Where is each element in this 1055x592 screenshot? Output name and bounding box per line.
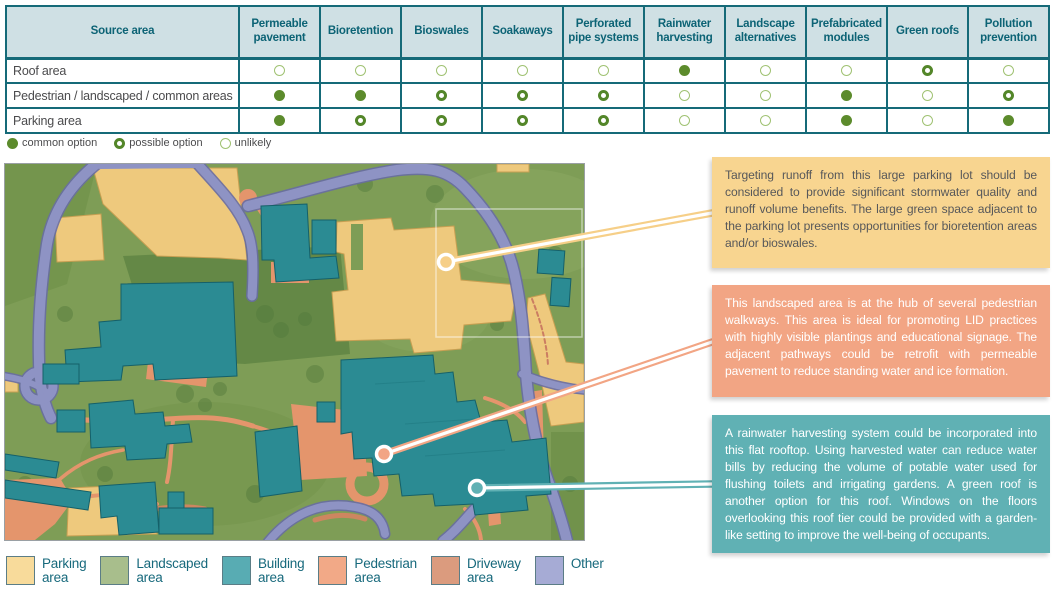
matrix-cell: [887, 108, 968, 133]
column-header-green-roofs: Green roofs: [887, 6, 968, 58]
matrix-cell: [563, 83, 644, 108]
column-header-pollution-prevention: Pollution prevention: [968, 6, 1049, 58]
dot-unlikely-option: [841, 65, 852, 76]
symbol-legend-item: unlikely: [220, 137, 272, 149]
dot-possible-option: [517, 90, 528, 101]
dot-unlikely-option: [220, 138, 231, 149]
callout-landscaped-hub: This landscaped area is at the hub of se…: [712, 285, 1050, 397]
dot-possible-option: [598, 115, 609, 126]
matrix-cell: [401, 58, 482, 83]
legend-item-parking-area: Parkingarea: [6, 556, 86, 585]
dot-common-option: [355, 90, 366, 101]
legend-item-pedestrian-area: Pedestrianarea: [318, 556, 417, 585]
dot-unlikely-option: [922, 115, 933, 126]
matrix-cell: [320, 83, 401, 108]
legend-swatch: [318, 556, 347, 585]
matrix-row: Roof area: [6, 58, 1049, 83]
legend-swatch: [535, 556, 564, 585]
matrix-row: Pedestrian / landscaped / common areas: [6, 83, 1049, 108]
matrix-cell: [806, 83, 887, 108]
legend-item-driveway-area: Drivewayarea: [431, 556, 521, 585]
campus-aerial-map: [4, 163, 585, 541]
dot-unlikely-option: [679, 90, 690, 101]
column-header-prefabricated-modules: Prefabricated modules: [806, 6, 887, 58]
legend-label: Landscapedarea: [136, 556, 208, 585]
legend-swatch: [100, 556, 129, 585]
matrix-cell: [320, 58, 401, 83]
dot-unlikely-option: [760, 65, 771, 76]
matrix-cell: [887, 58, 968, 83]
column-header-perforated-pipe-systems: Perforated pipe systems: [563, 6, 644, 58]
matrix-cell: [401, 83, 482, 108]
dot-unlikely-option: [760, 115, 771, 126]
dot-possible-option: [114, 138, 125, 149]
symbol-legend-item: possible option: [114, 137, 202, 149]
row-label: Roof area: [6, 58, 239, 83]
dot-possible-option: [517, 115, 528, 126]
dot-unlikely-option: [679, 115, 690, 126]
dot-common-option: [841, 115, 852, 126]
column-header-permeable-pavement: Permeable pavement: [239, 6, 320, 58]
legend-item-other: Other: [535, 556, 604, 585]
symbol-legend-label: common option: [22, 137, 97, 149]
matrix-cell: [482, 108, 563, 133]
dot-unlikely-option: [760, 90, 771, 101]
dot-unlikely-option: [598, 65, 609, 76]
matrix-cell: [482, 83, 563, 108]
matrix-cell: [806, 58, 887, 83]
matrix-cell: [320, 108, 401, 133]
column-header-bioswales: Bioswales: [401, 6, 482, 58]
row-label: Parking area: [6, 108, 239, 133]
dot-common-option: [274, 90, 285, 101]
legend-swatch: [6, 556, 35, 585]
symbol-legend: common optionpossible optionunlikely: [7, 137, 271, 149]
dot-possible-option: [355, 115, 366, 126]
dot-unlikely-option: [1003, 65, 1014, 76]
matrix-cell: [887, 83, 968, 108]
dot-possible-option: [598, 90, 609, 101]
matrix-cell: [644, 83, 725, 108]
matrix-header-row: Source areaPermeable pavementBioretentio…: [6, 6, 1049, 58]
source-area-header: Source area: [6, 6, 239, 58]
column-header-rainwater-harvesting: Rainwater harvesting: [644, 6, 725, 58]
column-header-bioretention: Bioretention: [320, 6, 401, 58]
matrix-cell: [482, 58, 563, 83]
matrix-cell: [239, 83, 320, 108]
dot-possible-option: [1003, 90, 1014, 101]
row-label: Pedestrian / landscaped / common areas: [6, 83, 239, 108]
dot-unlikely-option: [274, 65, 285, 76]
matrix-cell: [968, 83, 1049, 108]
matrix-cell: [725, 58, 806, 83]
dot-possible-option: [436, 90, 447, 101]
matrix-cell: [644, 58, 725, 83]
legend-swatch: [431, 556, 460, 585]
dot-unlikely-option: [436, 65, 447, 76]
legend-label: Other: [571, 556, 604, 571]
matrix-cell: [968, 58, 1049, 83]
legend-item-landscaped-area: Landscapedarea: [100, 556, 208, 585]
dot-possible-option: [922, 65, 933, 76]
legend-label: Drivewayarea: [467, 556, 521, 585]
matrix-row: Parking area: [6, 108, 1049, 133]
dot-common-option: [679, 65, 690, 76]
dot-common-option: [1003, 115, 1014, 126]
symbol-legend-label: unlikely: [235, 137, 272, 149]
column-header-landscape-alternatives: Landscape alternatives: [725, 6, 806, 58]
dot-common-option: [7, 138, 18, 149]
matrix-cell: [401, 108, 482, 133]
matrix-cell: [239, 108, 320, 133]
matrix-cell: [725, 83, 806, 108]
callout-flat-rooftop: A rainwater harvesting system could be i…: [712, 415, 1050, 553]
matrix-cell: [968, 108, 1049, 133]
legend-label: Pedestrianarea: [354, 556, 417, 585]
matrix-cell: [644, 108, 725, 133]
symbol-legend-item: common option: [7, 137, 97, 149]
dot-common-option: [841, 90, 852, 101]
legend-item-building-area: Buildingarea: [222, 556, 304, 585]
matrix-cell: [725, 108, 806, 133]
matrix-cell: [563, 58, 644, 83]
callout-parking-lot: Targeting runoff from this large parking…: [712, 157, 1050, 268]
dot-unlikely-option: [517, 65, 528, 76]
matrix-cell: [563, 108, 644, 133]
legend-label: Parkingarea: [42, 556, 86, 585]
dot-possible-option: [436, 115, 447, 126]
matrix-cell: [806, 108, 887, 133]
legend-swatch: [222, 556, 251, 585]
legend-label: Buildingarea: [258, 556, 304, 585]
dot-common-option: [274, 115, 285, 126]
dot-unlikely-option: [922, 90, 933, 101]
lid-practices-matrix: Source areaPermeable pavementBioretentio…: [5, 5, 1050, 134]
matrix-cell: [239, 58, 320, 83]
symbol-legend-label: possible option: [129, 137, 202, 149]
map-area-legend: ParkingareaLandscapedareaBuildingareaPed…: [6, 556, 618, 585]
column-header-soakaways: Soakaways: [482, 6, 563, 58]
dot-unlikely-option: [355, 65, 366, 76]
